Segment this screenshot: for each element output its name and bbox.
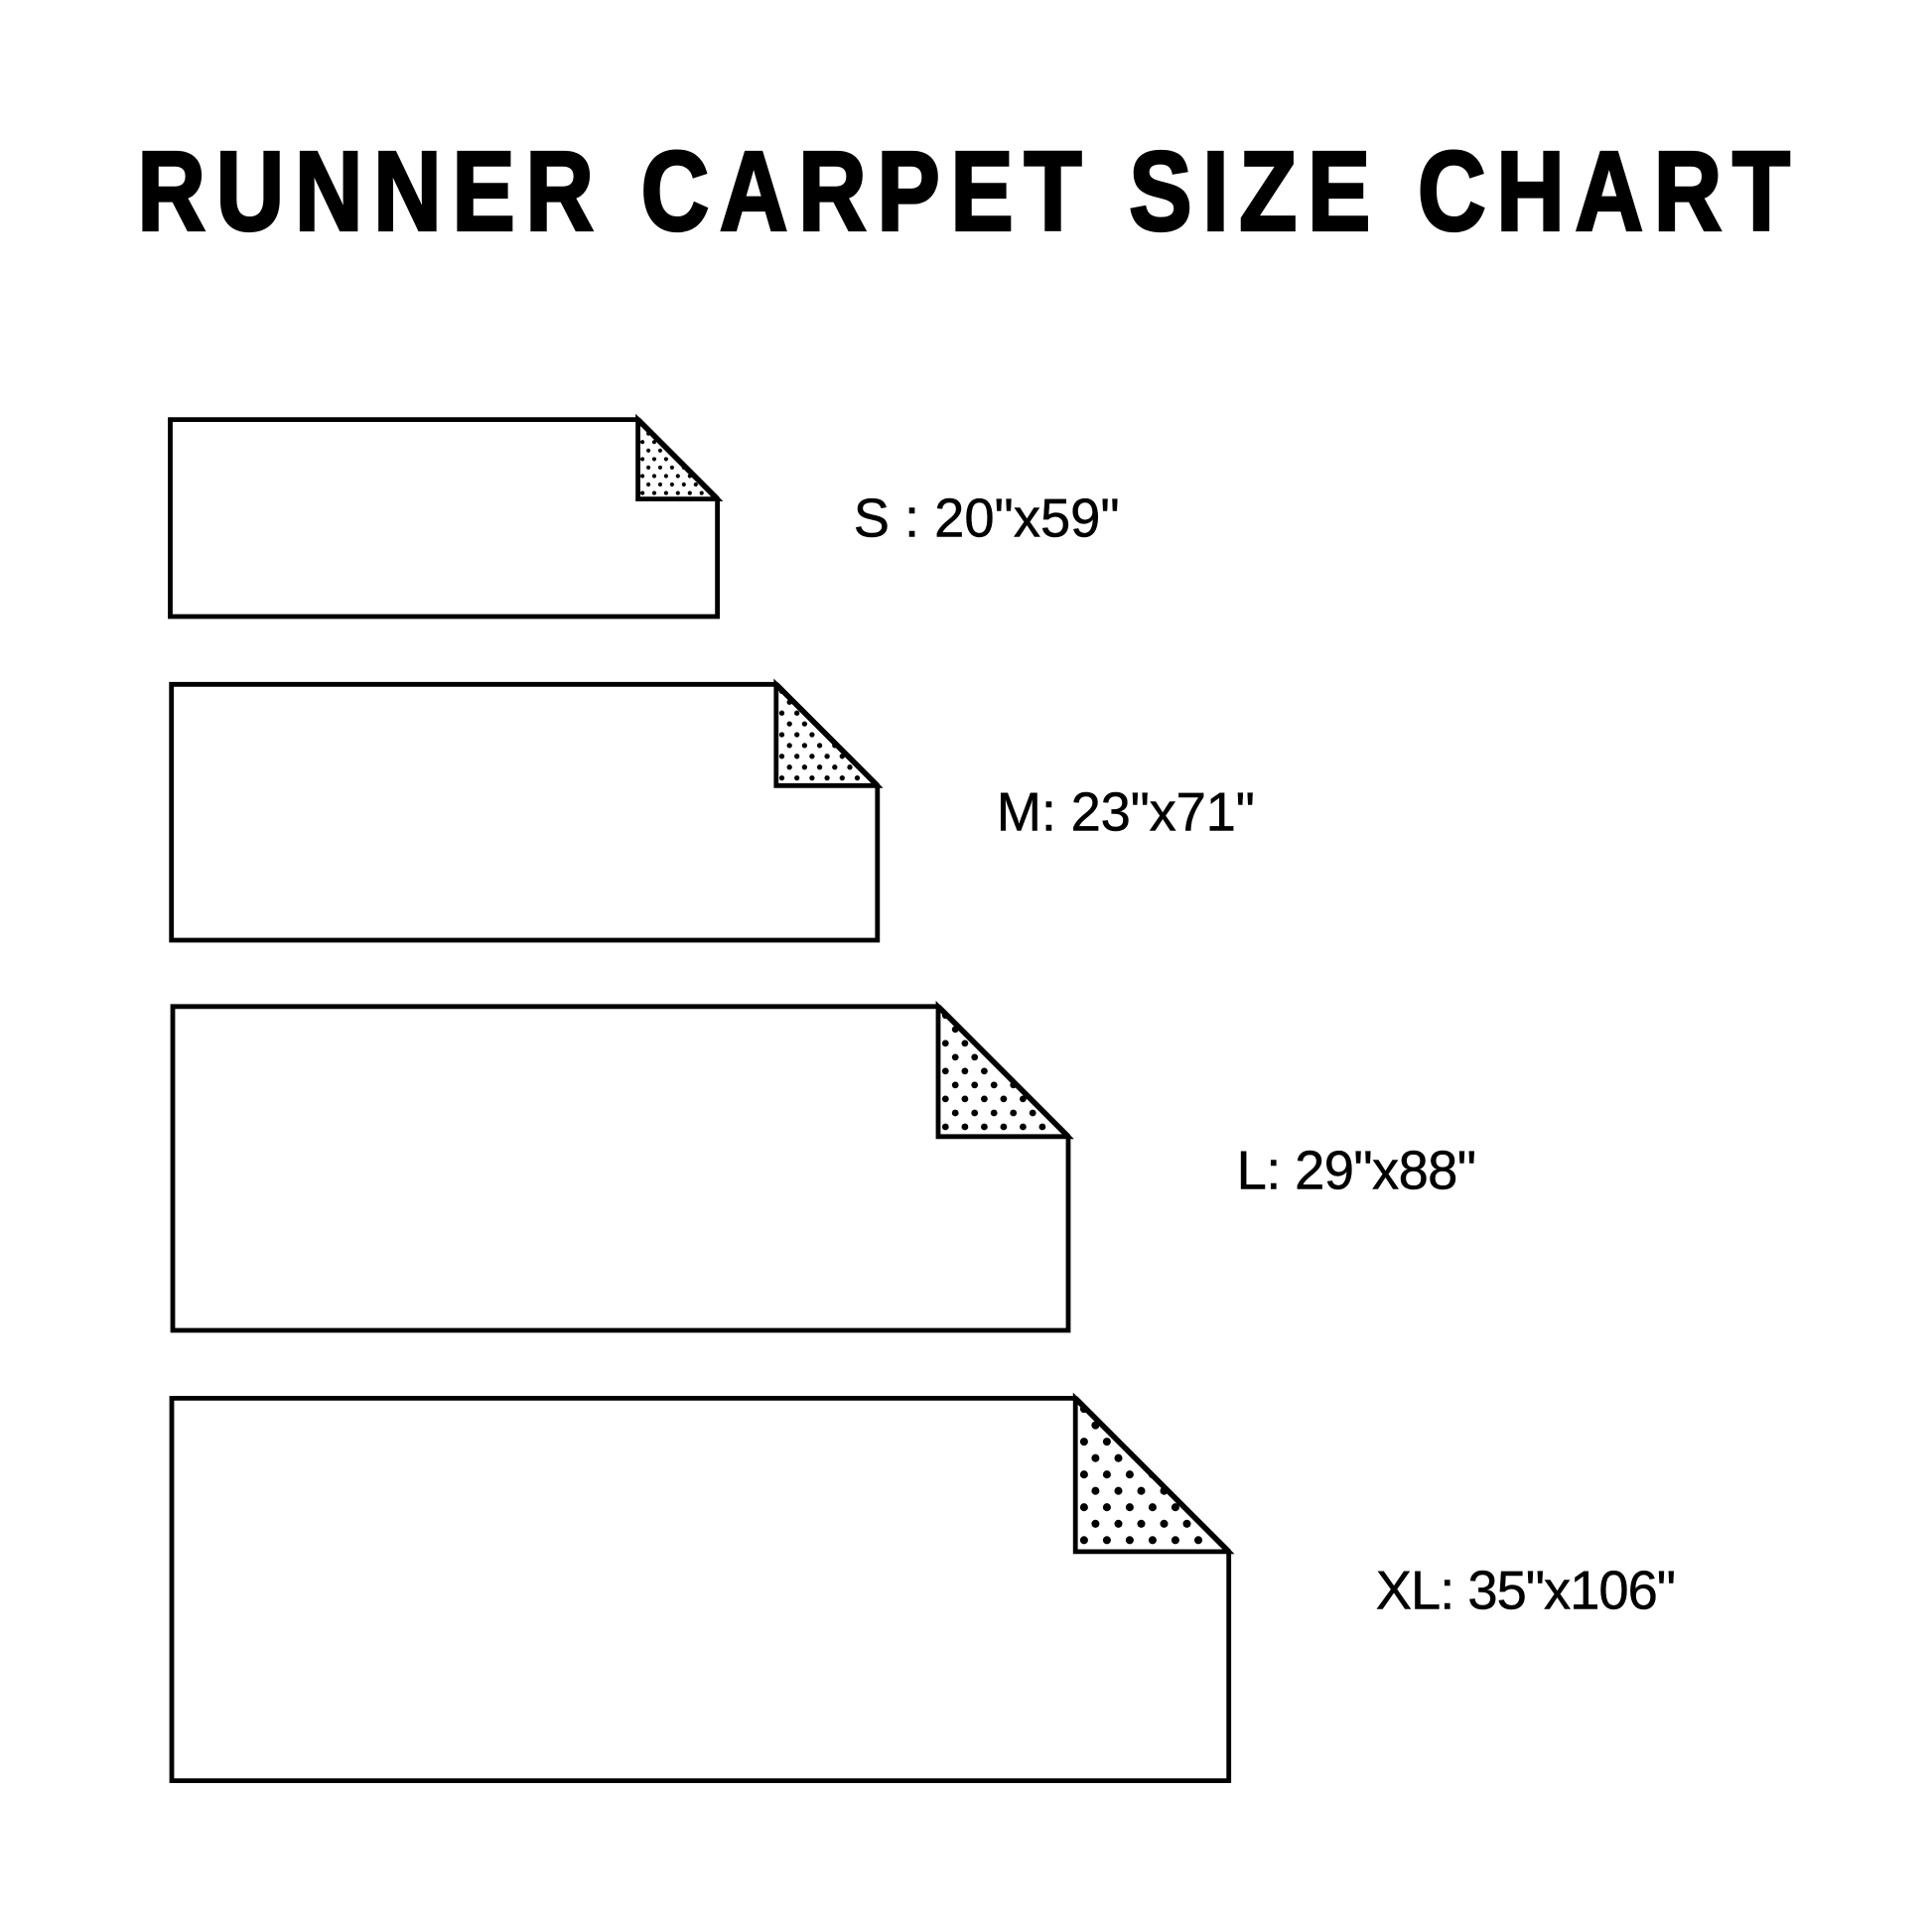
svg-text:XL: 35"x106": XL: 35"x106" bbox=[1376, 1560, 1675, 1620]
svg-text:L: 29"x88": L: 29"x88" bbox=[1237, 1141, 1476, 1201]
svg-text:RUNNER CARPET SIZE CHART: RUNNER CARPET SIZE CHART bbox=[137, 130, 1800, 255]
svg-text:M: 23"x71": M: 23"x71" bbox=[997, 782, 1255, 843]
svg-text:S : 20"x59": S : 20"x59" bbox=[854, 487, 1120, 548]
